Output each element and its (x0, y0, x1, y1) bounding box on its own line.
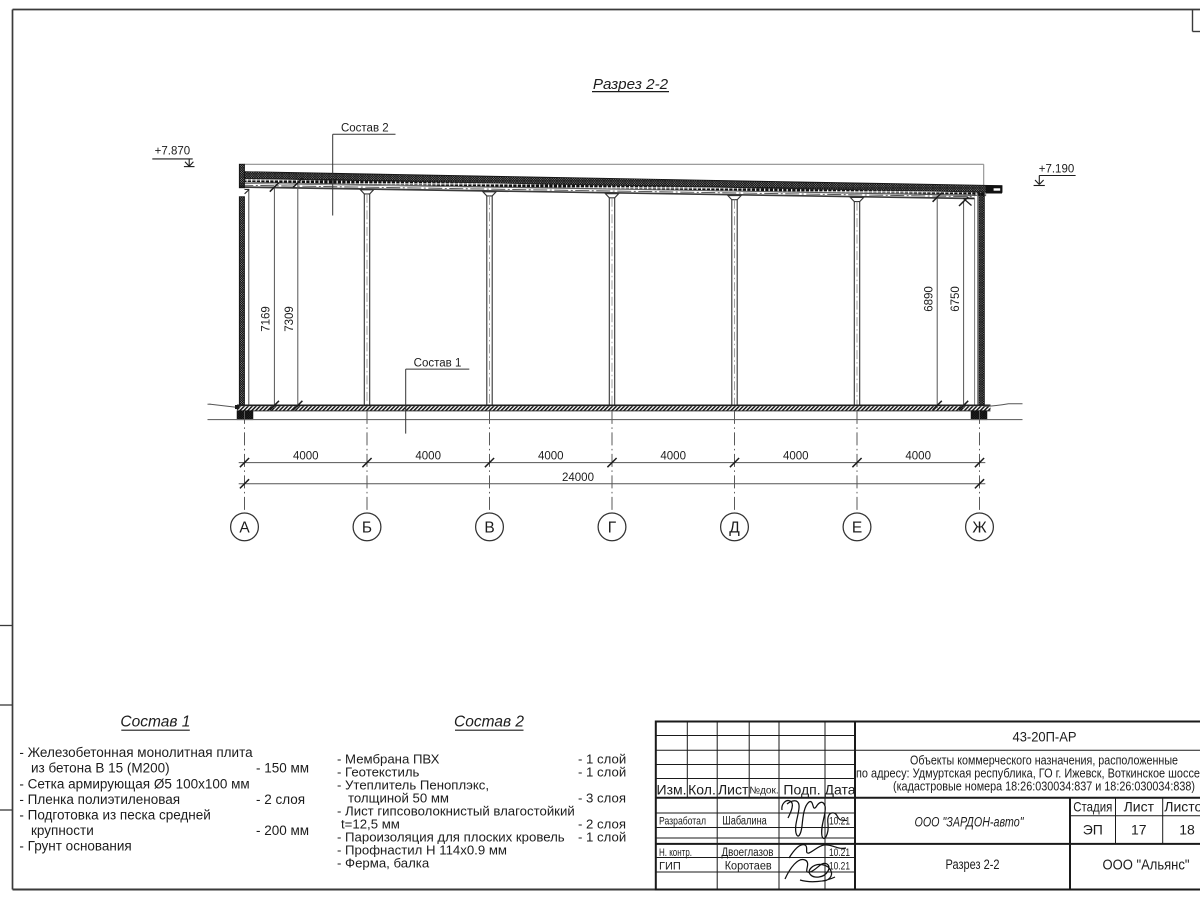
svg-text:4000: 4000 (538, 451, 564, 463)
svg-text:крупности: крупности (31, 823, 94, 838)
svg-text:- 150 мм: - 150 мм (256, 761, 309, 776)
svg-text:Объекты коммерческого назначен: Объекты коммерческого назначения, распол… (910, 754, 1178, 768)
svg-text:10.21: 10.21 (829, 815, 850, 827)
svg-text:А: А (239, 519, 250, 536)
svg-text:Д: Д (729, 519, 740, 536)
svg-text:Подп.: Подп. (783, 781, 820, 797)
svg-text:Лист: Лист (718, 781, 749, 797)
svg-text:7309: 7309 (284, 306, 296, 332)
svg-text:- Грунт основания: - Грунт основания (19, 839, 131, 854)
svg-text:4000: 4000 (905, 451, 931, 463)
svg-text:- Пленка полиэтиленовая: - Пленка полиэтиленовая (19, 792, 180, 807)
svg-text:Состав 2: Состав 2 (341, 123, 389, 135)
svg-text:ООО "Альянс": ООО "Альянс" (1103, 858, 1190, 874)
svg-text:4000: 4000 (293, 451, 319, 463)
svg-text:- 3 слоя: - 3 слоя (578, 791, 626, 806)
svg-text:- 1 слой: - 1 слой (578, 765, 626, 780)
svg-text:4000: 4000 (660, 451, 686, 463)
svg-text:7169: 7169 (261, 306, 273, 332)
svg-text:- Подготовка из песка средней: - Подготовка из песка средней (19, 808, 210, 823)
svg-text:- Железобетонная монолитная п: - Железобетонная монолитная плита (19, 745, 253, 760)
svg-text:4000: 4000 (783, 451, 809, 463)
svg-text:Н. контр.: Н. контр. (659, 847, 692, 859)
svg-text:Состав 2: Состав 2 (454, 713, 524, 730)
svg-text:В: В (484, 519, 494, 536)
svg-text:- Ферма, балка: - Ферма, балка (337, 856, 430, 871)
svg-text:Разрез 2-2: Разрез 2-2 (593, 76, 669, 93)
svg-text:4000: 4000 (415, 451, 441, 463)
svg-text:17: 17 (1131, 822, 1147, 838)
svg-text:10.21: 10.21 (829, 861, 850, 873)
svg-text:Стадия: Стадия (1073, 799, 1112, 815)
svg-text:Коротаев: Коротаев (725, 861, 772, 873)
svg-text:Двоеглазов: Двоеглазов (722, 847, 774, 859)
svg-text:Б: Б (362, 519, 372, 536)
svg-text:6750: 6750 (950, 286, 962, 312)
svg-text:18: 18 (1179, 822, 1195, 838)
svg-text:Дата: Дата (824, 781, 855, 797)
svg-text:Изм.: Изм. (657, 781, 687, 797)
svg-text:Разработал: Разработал (659, 815, 706, 827)
svg-text:Кол.: Кол. (688, 781, 716, 797)
svg-text:Разрез 2-2: Разрез 2-2 (946, 857, 1000, 872)
svg-text:Лист: Лист (1124, 799, 1155, 815)
svg-text:Листов: Листов (1164, 799, 1200, 815)
svg-text:(кадастровые номера 18:26:0300: (кадастровые номера 18:26:030034:837 и 1… (893, 779, 1195, 793)
svg-text:ООО "ЗАРДОН-авто": ООО "ЗАРДОН-авто" (915, 815, 1025, 830)
svg-text:Е: Е (852, 519, 862, 536)
svg-text:- 2 слоя: - 2 слоя (256, 792, 305, 807)
svg-text:- 200 мм: - 200 мм (256, 823, 309, 838)
svg-text:- Сетка армирующая Ø5 100х100: - Сетка армирующая Ø5 100х100 мм (19, 776, 249, 791)
svg-text:Состав 1: Состав 1 (120, 713, 190, 730)
svg-text:+7.190: +7.190 (1039, 164, 1075, 176)
svg-text:43-20П-АР: 43-20П-АР (1013, 728, 1077, 744)
svg-text:24000: 24000 (562, 472, 594, 484)
svg-text:Состав 1: Состав 1 (414, 357, 462, 369)
svg-text:№док.: №док. (749, 786, 778, 797)
svg-text:ЭП: ЭП (1083, 822, 1103, 838)
svg-text:Шабалина: Шабалина (722, 815, 767, 827)
svg-text:+7.870: +7.870 (155, 146, 191, 158)
svg-text:- 1 слой: - 1 слой (578, 830, 626, 845)
svg-text:Г: Г (608, 519, 617, 536)
svg-text:6890: 6890 (923, 286, 935, 312)
svg-text:Ж: Ж (972, 519, 987, 536)
svg-text:ГИП: ГИП (659, 861, 681, 873)
svg-text:из бетона В 15 (М200): из бетона В 15 (М200) (31, 761, 170, 776)
